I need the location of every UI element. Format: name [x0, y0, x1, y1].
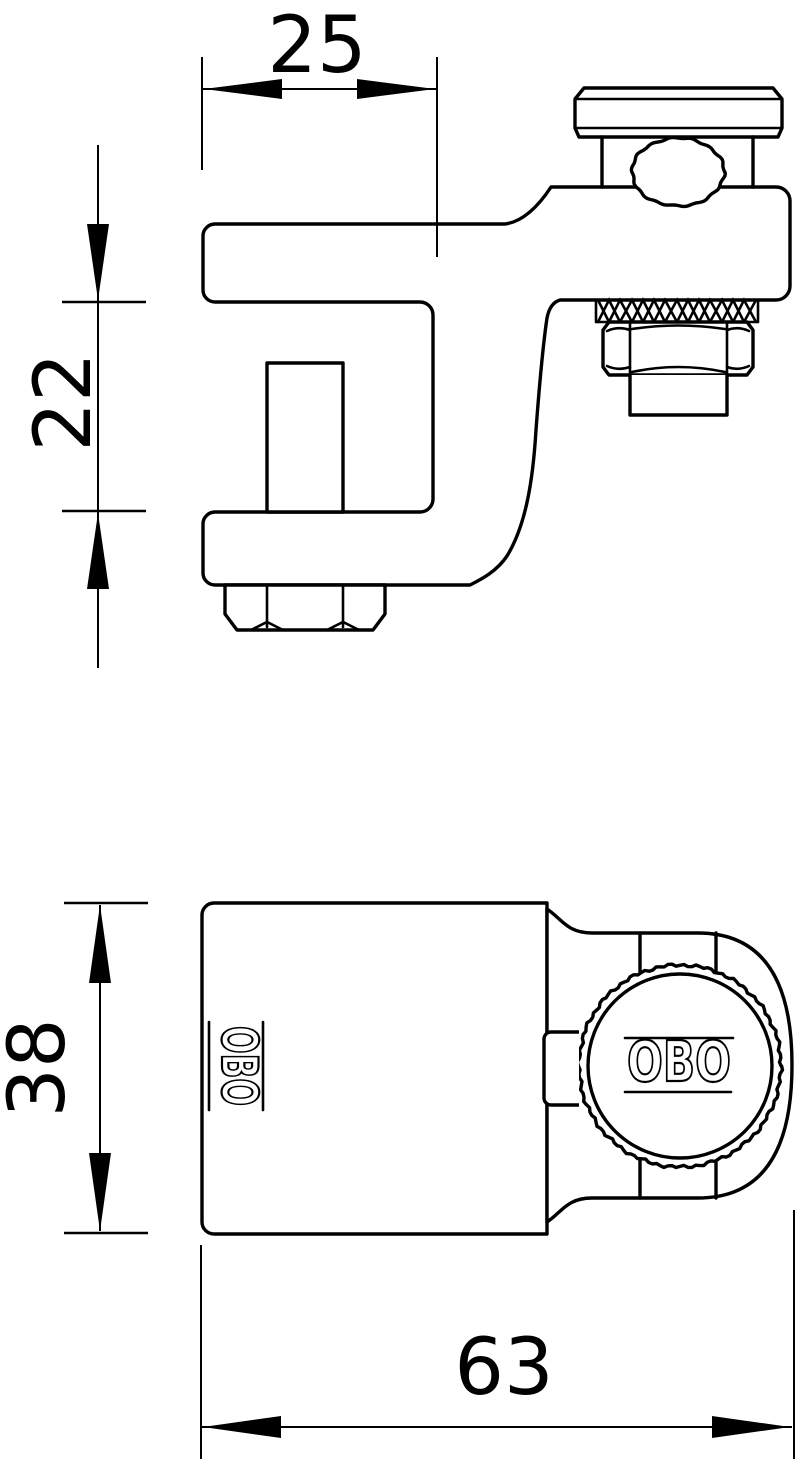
dim-38-label: 38 — [0, 1018, 83, 1117]
arrowhead-down — [87, 224, 109, 300]
arrowhead-up — [89, 905, 111, 983]
arrowhead-down — [89, 1153, 111, 1231]
technical-drawing-page: 25 22 OBO — [0, 0, 796, 1459]
dim-22-label: 22 — [19, 352, 109, 451]
arrowhead-right — [357, 79, 435, 99]
logo-body-text: OBO — [210, 1026, 268, 1106]
dim-25-label: 25 — [267, 1, 366, 91]
logo-knob-text: OBO — [627, 1030, 731, 1095]
arrowhead-left — [203, 1416, 281, 1438]
screw-head — [575, 88, 782, 137]
pressure-pad — [267, 363, 343, 512]
hex-nut — [603, 322, 753, 375]
hex-bolt-head — [225, 585, 385, 630]
arrowhead-up — [87, 513, 109, 589]
arrowhead-right — [712, 1416, 790, 1438]
dim-63: 63 — [201, 1210, 794, 1459]
obo-logo-body: OBO — [209, 1022, 268, 1110]
dim-22: 22 — [19, 145, 146, 668]
jaw-tab — [544, 1032, 579, 1105]
dim-63-label: 63 — [454, 1323, 553, 1413]
serrated-washer — [596, 300, 758, 322]
front-view: OBO OBO 38 63 — [0, 903, 794, 1459]
side-view: 25 22 — [19, 1, 790, 668]
obo-logo-knob: OBO — [625, 1030, 733, 1095]
dim-25: 25 — [202, 1, 437, 257]
ball-tip — [631, 138, 725, 207]
stud-end — [630, 375, 727, 415]
beam-clamp-drawing: 25 22 OBO — [0, 0, 796, 1459]
dim-38: 38 — [0, 903, 148, 1233]
